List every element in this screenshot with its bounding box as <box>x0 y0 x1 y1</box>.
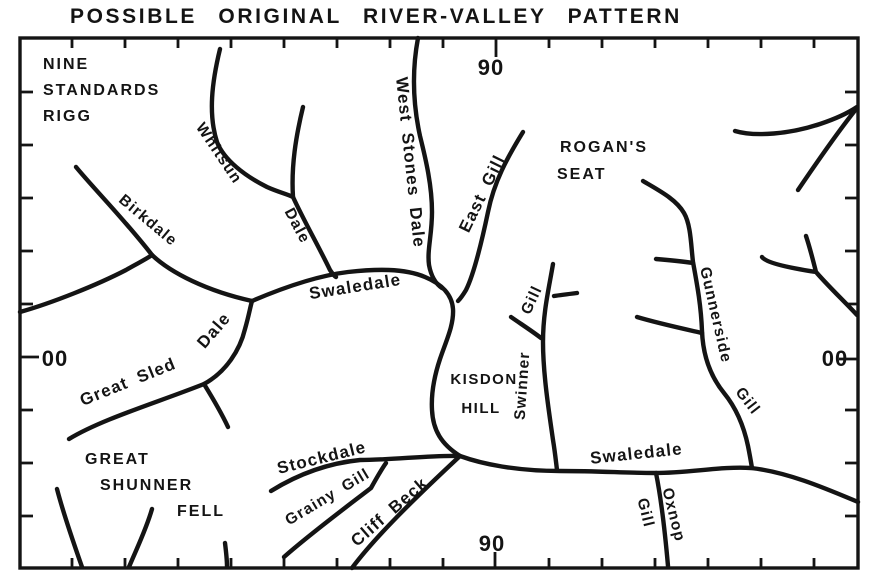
place-nine-standards-rigg-line1: NINE <box>43 56 89 73</box>
river-gunnerside-tributary-upper <box>656 259 693 263</box>
grid-label-00-left: 00 <box>42 346 68 371</box>
river-whitsun-dale-east-branch <box>293 107 303 197</box>
label-east-gill: East Gill <box>455 152 509 236</box>
place-great-shunner-fell-line3: FELL <box>177 503 225 520</box>
stream-stubs-bottom-left <box>57 489 227 567</box>
place-rogans-seat-line2: SEAT <box>557 166 606 183</box>
grid-label-90-top: 90 <box>478 55 504 80</box>
river-birkdale-lower <box>152 255 252 301</box>
place-rogans-seat-line1: ROGAN'S <box>560 139 648 156</box>
ticks-top-edge <box>72 38 814 57</box>
place-kisdon-hill-line1: KISDON <box>450 371 517 388</box>
label-great-sled-dale: Dale <box>193 309 234 352</box>
grid-label-90-bottom: 90 <box>479 531 505 556</box>
place-kisdon-hill-line2: HILL <box>461 400 500 417</box>
river-swinner-gill-east-stub <box>554 293 577 296</box>
place-nine-standards-rigg-line2: STANDARDS <box>43 82 160 99</box>
scanned-map-page: POSSIBLE ORIGINAL RIVER-VALLEY PATTERN <box>0 0 873 579</box>
place-great-shunner-fell-line1: GREAT <box>85 451 150 468</box>
river-great-sled-dale-spur <box>204 384 228 427</box>
label-whitsun: Whitsun <box>192 120 245 187</box>
label-swinner: Swinner <box>512 351 534 421</box>
place-nine-standards-rigg-line3: RIGG <box>43 108 92 125</box>
river-swinner-gill-west-branch <box>511 317 541 338</box>
label-west-stones-dale: West Stones Dale <box>392 76 429 249</box>
river-swaledale-upper-kisdon-loop <box>252 270 460 456</box>
label-swinner-gill: Gill <box>518 283 546 317</box>
river-valley-map: 90 90 00 00 NINE STANDARDS RIGG ROGAN'S … <box>0 0 873 579</box>
ticks-bottom-edge <box>72 552 814 568</box>
river-gunnerside-tributary-lower <box>637 317 702 333</box>
river-west-edge-tributary <box>20 255 152 312</box>
ticks-left-edge <box>20 92 39 516</box>
river-mid-right-stream <box>762 236 857 315</box>
place-great-shunner-fell-line2: SHUNNER <box>100 477 193 494</box>
label-oxnop-gill: Gill <box>634 496 658 529</box>
grid-label-00-right: 00 <box>822 346 848 371</box>
label-swaledale-lower: Swaledale <box>589 439 683 468</box>
river-top-right-confluence <box>735 107 857 190</box>
